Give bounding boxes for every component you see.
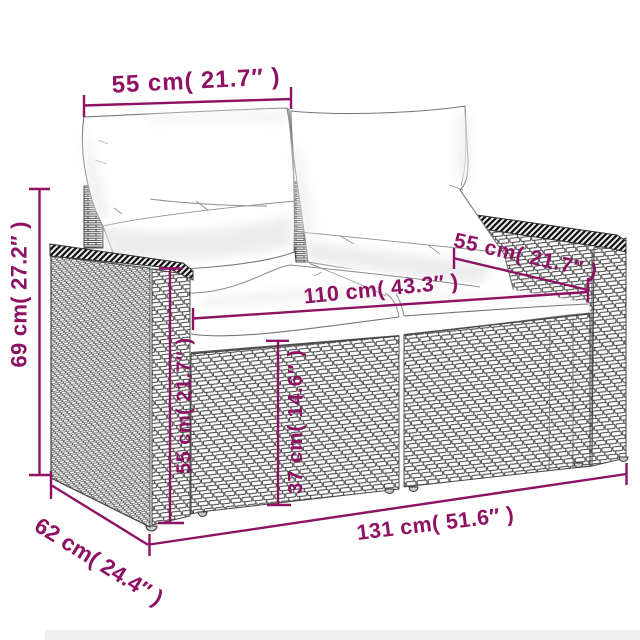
svg-text:69 cm( 27.2″ ): 69 cm( 27.2″ ) — [7, 222, 32, 368]
svg-text:55 cm( 21.7″ ): 55 cm( 21.7″ ) — [174, 338, 196, 474]
svg-text:37 cm( 14.6″ ): 37 cm( 14.6″ ) — [284, 350, 307, 494]
